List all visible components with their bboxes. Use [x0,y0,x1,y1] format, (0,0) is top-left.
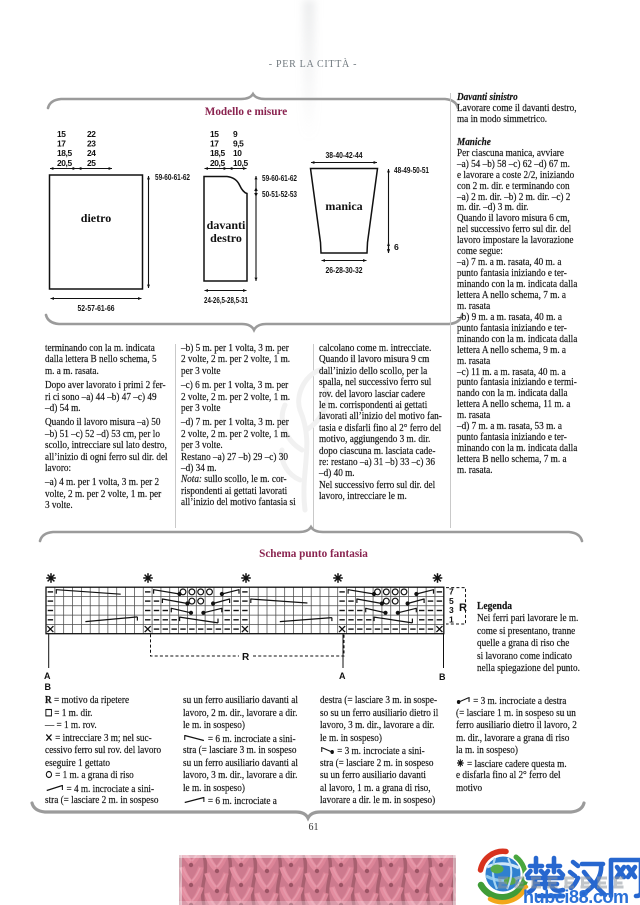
svg-text:hubei88.com: hubei88.com [523,887,629,905]
